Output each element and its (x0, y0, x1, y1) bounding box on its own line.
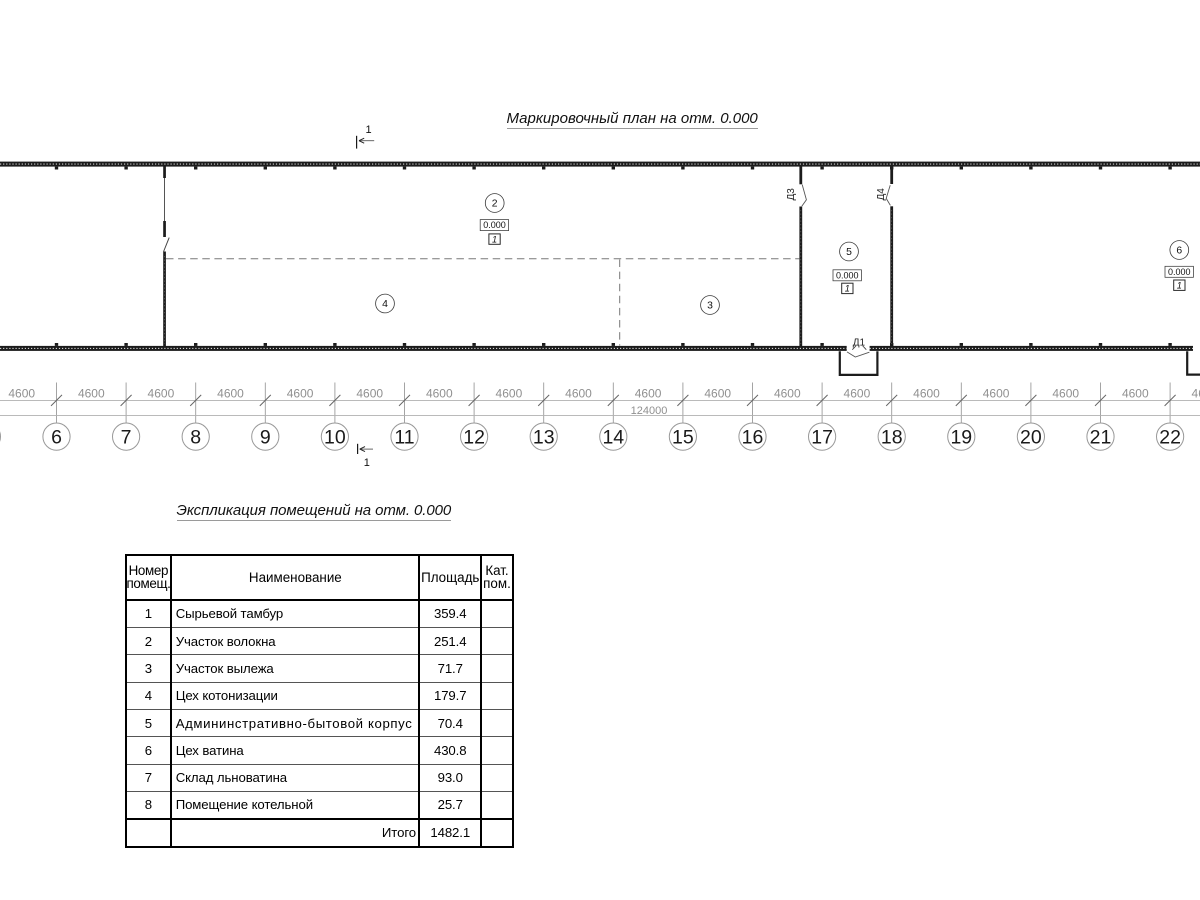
svg-text:8: 8 (190, 427, 201, 449)
svg-text:4: 4 (382, 299, 388, 310)
svg-text:4600: 4600 (704, 386, 731, 400)
svg-text:12: 12 (463, 427, 485, 449)
svg-text:21: 21 (1090, 427, 1112, 449)
svg-text:Д1: Д1 (853, 337, 866, 348)
svg-text:Д4: Д4 (876, 188, 887, 201)
svg-text:1: 1 (364, 457, 370, 469)
svg-text:18: 18 (881, 427, 903, 449)
svg-text:0.000: 0.000 (836, 270, 859, 280)
svg-text:14: 14 (602, 427, 624, 449)
svg-text:15: 15 (672, 427, 694, 449)
svg-text:17: 17 (811, 427, 833, 449)
svg-text:4600: 4600 (565, 386, 592, 400)
svg-text:4600: 4600 (148, 386, 175, 400)
svg-text:0.000: 0.000 (1168, 267, 1191, 277)
svg-text:4600: 4600 (844, 386, 871, 400)
svg-text:4600: 4600 (774, 386, 801, 400)
svg-text:9: 9 (260, 427, 271, 449)
svg-text:4600: 4600 (1192, 386, 1200, 400)
svg-text:7: 7 (121, 427, 132, 449)
svg-text:4600: 4600 (913, 386, 940, 400)
svg-text:0.000: 0.000 (483, 220, 506, 230)
svg-text:13: 13 (533, 427, 555, 449)
svg-text:4600: 4600 (1052, 386, 1079, 400)
svg-text:4600: 4600 (496, 386, 523, 400)
svg-text:10: 10 (324, 427, 346, 449)
svg-text:4600: 4600 (1122, 386, 1149, 400)
svg-text:1: 1 (845, 284, 850, 294)
svg-text:4600: 4600 (426, 386, 453, 400)
svg-text:2: 2 (492, 199, 498, 210)
svg-text:20: 20 (1020, 427, 1042, 449)
svg-text:1: 1 (492, 234, 497, 244)
svg-text:124000: 124000 (631, 405, 668, 417)
svg-text:1: 1 (1177, 280, 1182, 290)
svg-text:4600: 4600 (8, 386, 35, 400)
svg-text:Д3: Д3 (786, 188, 797, 201)
svg-text:4600: 4600 (217, 386, 244, 400)
svg-text:19: 19 (950, 427, 972, 449)
svg-text:4600: 4600 (635, 386, 662, 400)
svg-text:1: 1 (365, 124, 371, 136)
svg-text:6: 6 (1176, 246, 1182, 257)
svg-text:3: 3 (707, 301, 713, 312)
svg-text:16: 16 (742, 427, 764, 449)
svg-text:11: 11 (394, 427, 414, 449)
svg-text:4600: 4600 (983, 386, 1010, 400)
svg-text:4600: 4600 (356, 386, 383, 400)
svg-text:4600: 4600 (78, 386, 105, 400)
svg-text:4600: 4600 (287, 386, 314, 400)
svg-text:22: 22 (1159, 427, 1181, 449)
svg-text:5: 5 (846, 247, 852, 258)
svg-text:6: 6 (51, 427, 62, 449)
